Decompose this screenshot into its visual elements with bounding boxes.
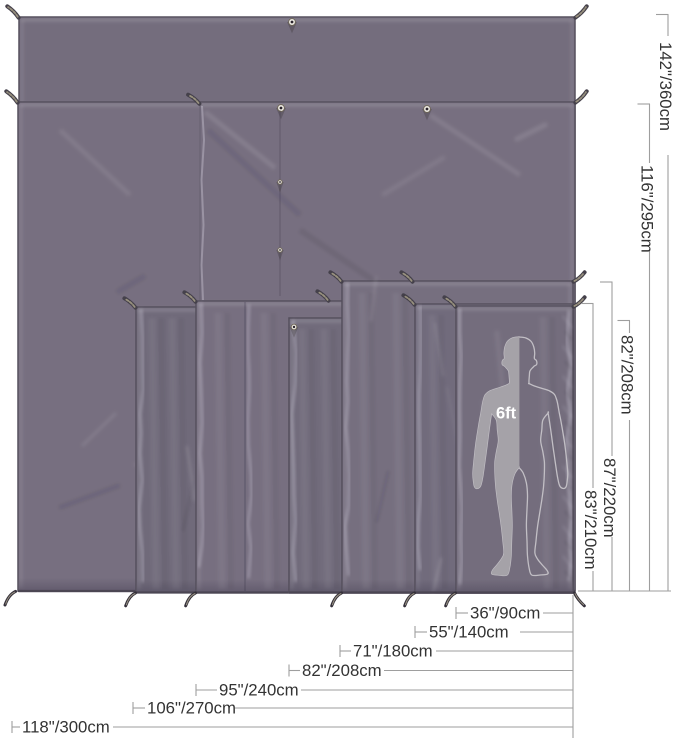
svg-text:82"/208cm: 82"/208cm [618, 335, 637, 415]
svg-text:55"/140cm: 55"/140cm [429, 623, 509, 642]
svg-text:95"/240cm: 95"/240cm [219, 681, 299, 700]
svg-text:6ft: 6ft [496, 405, 517, 423]
svg-text:116"/295cm: 116"/295cm [638, 165, 657, 253]
svg-text:83"/210cm: 83"/210cm [581, 490, 600, 570]
svg-text:71"/180cm: 71"/180cm [353, 642, 433, 661]
svg-text:87"/220cm: 87"/220cm [600, 458, 619, 538]
svg-text:36"/90cm: 36"/90cm [470, 604, 540, 623]
svg-text:142"/360cm: 142"/360cm [656, 42, 675, 131]
svg-text:118"/300cm: 118"/300cm [22, 718, 110, 737]
svg-text:82"/208cm: 82"/208cm [302, 661, 382, 680]
svg-text:106"/270cm: 106"/270cm [147, 699, 236, 718]
